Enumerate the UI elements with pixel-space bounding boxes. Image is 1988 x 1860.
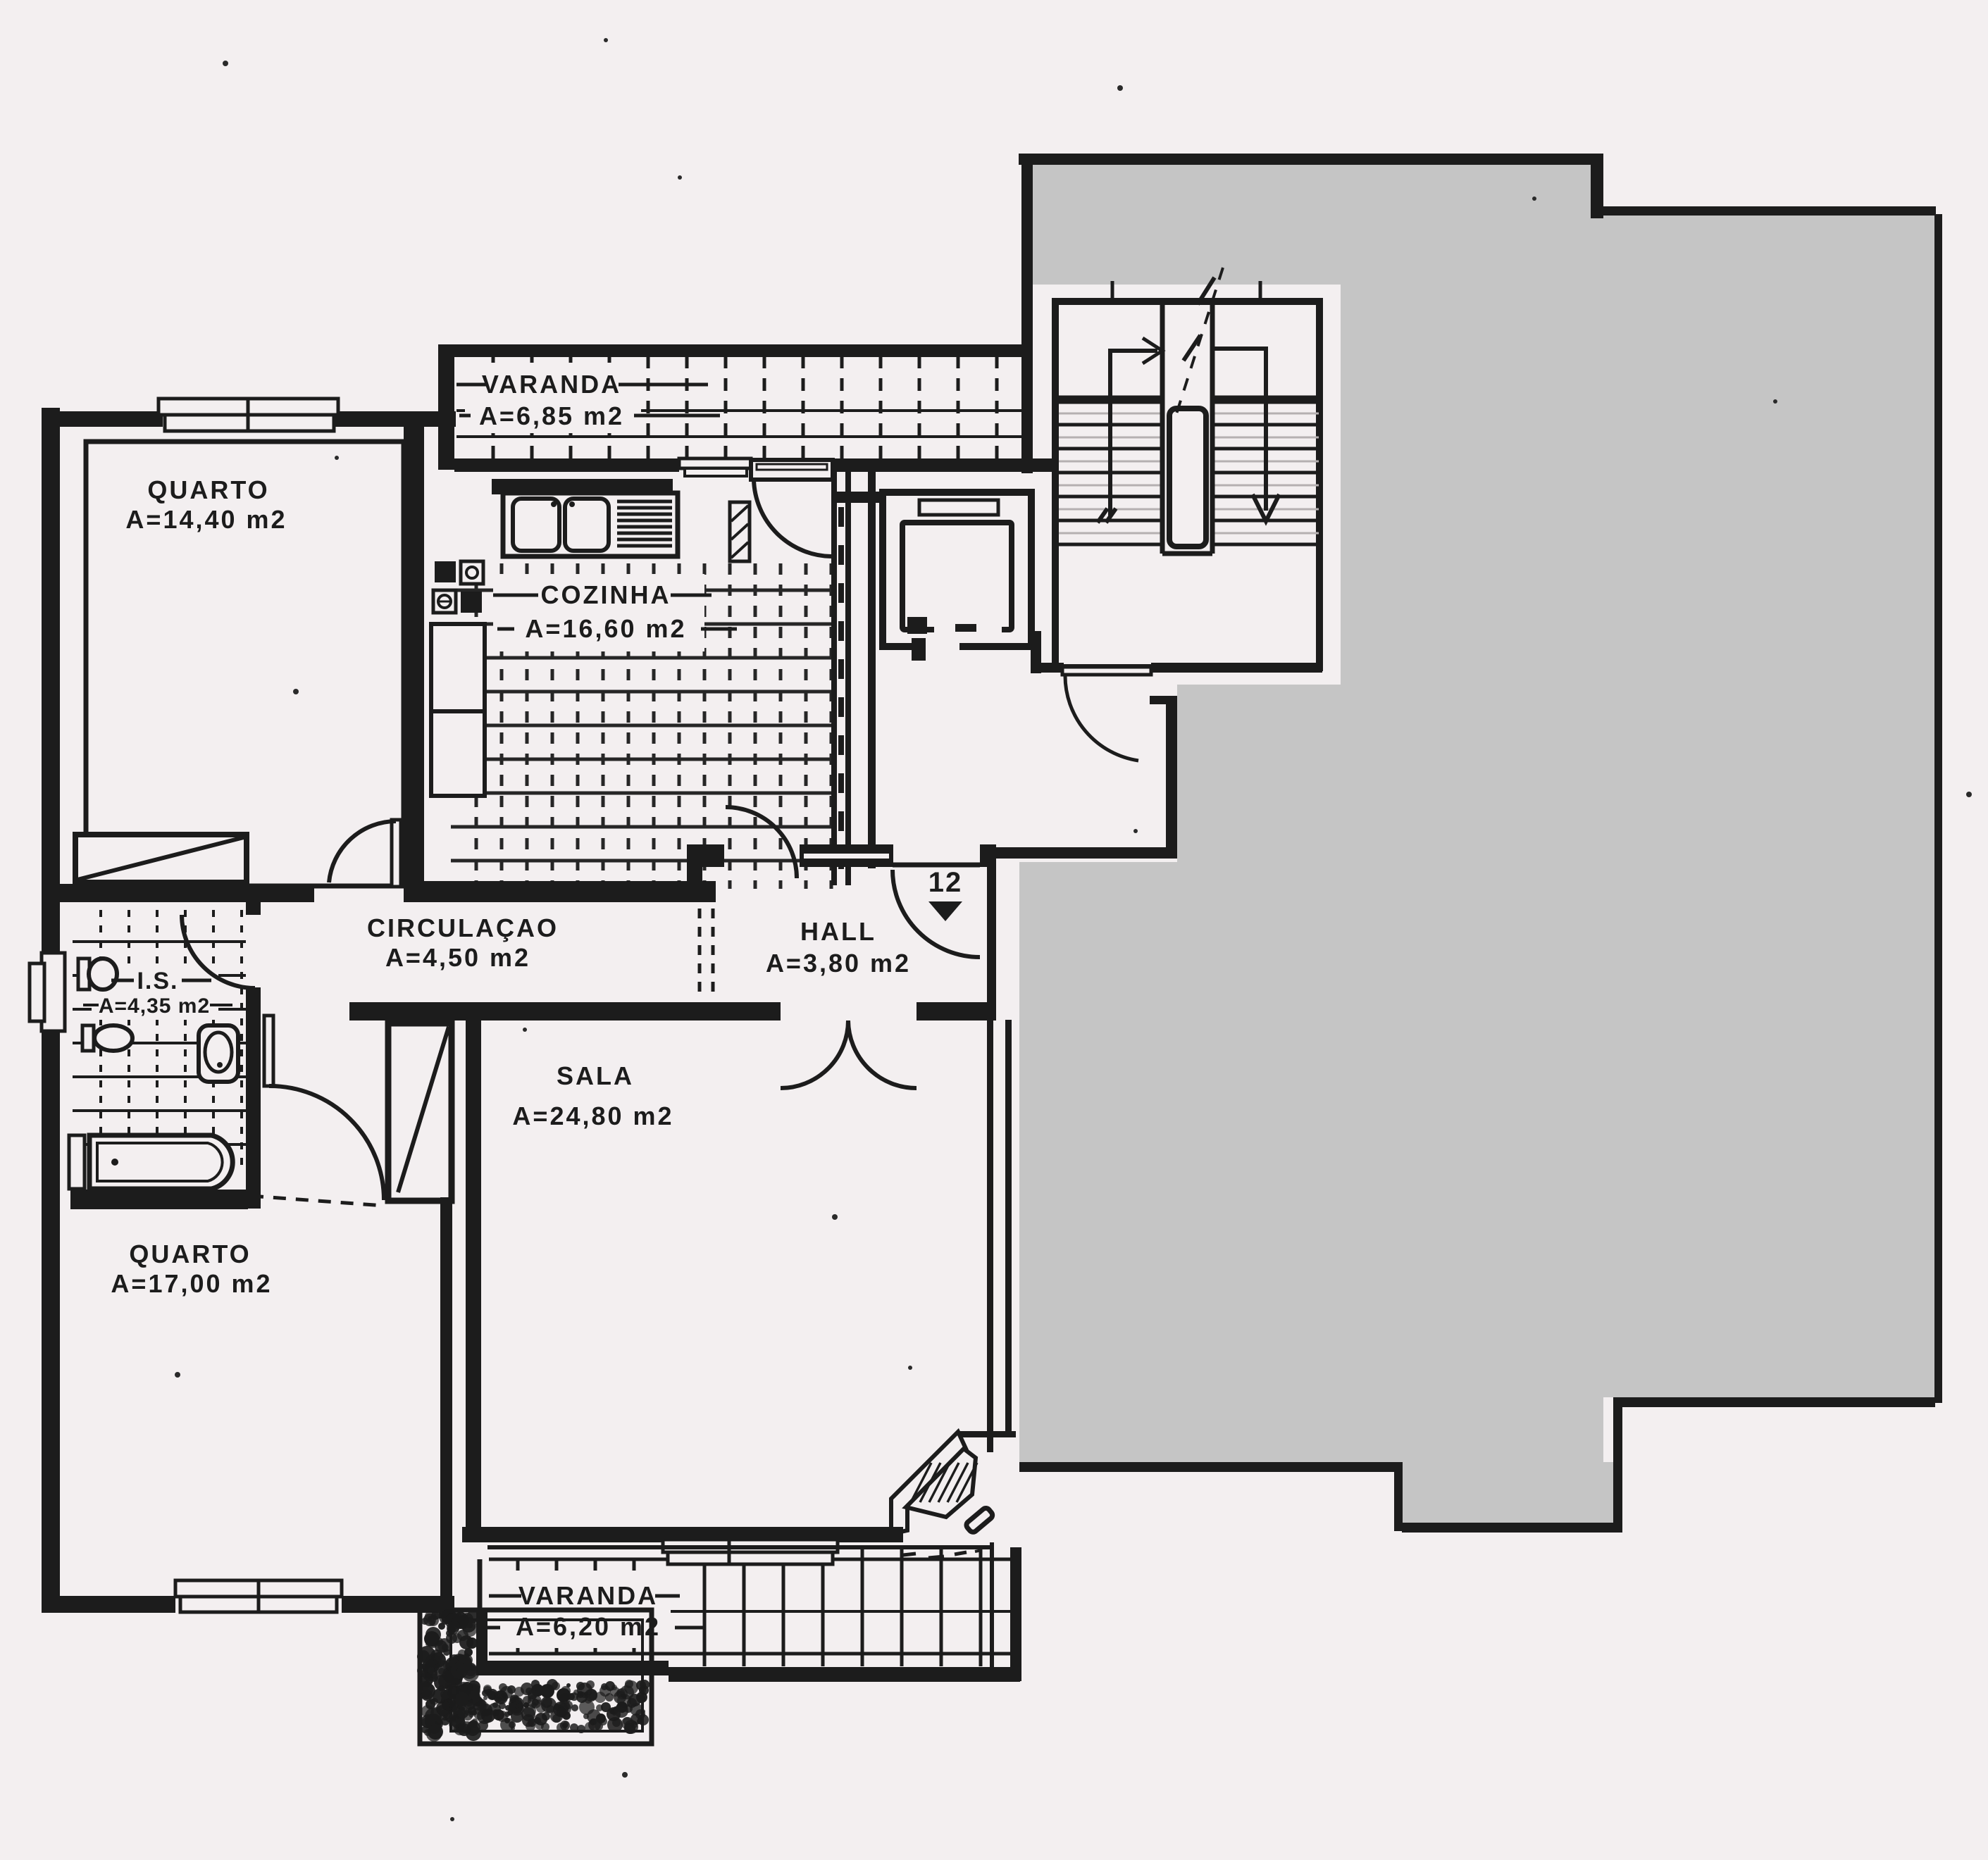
svg-text:A=6,20 m2: A=6,20 m2: [516, 1612, 661, 1641]
svg-text:HALL: HALL: [800, 917, 876, 946]
svg-text:A=4,50 m2: A=4,50 m2: [385, 943, 530, 972]
svg-text:QUARTO: QUARTO: [147, 475, 269, 504]
svg-text:A=6,85 m2: A=6,85 m2: [479, 401, 624, 430]
svg-text:VARANDA: VARANDA: [518, 1581, 658, 1610]
svg-text:A=3,80 m2: A=3,80 m2: [766, 949, 911, 978]
svg-text:QUARTO: QUARTO: [129, 1240, 251, 1268]
svg-text:A=24,80 m2: A=24,80 m2: [512, 1101, 673, 1130]
svg-text:SALA: SALA: [557, 1061, 634, 1090]
svg-text:CIRCULAÇAO: CIRCULAÇAO: [367, 913, 559, 942]
svg-text:A=17,00 m2: A=17,00 m2: [111, 1269, 272, 1298]
svg-text:A=14,40 m2: A=14,40 m2: [125, 505, 287, 534]
svg-text:A=4,35 m2: A=4,35 m2: [99, 994, 210, 1018]
svg-text:VARANDA: VARANDA: [482, 370, 621, 399]
svg-text:A=16,60 m2: A=16,60 m2: [525, 614, 686, 643]
svg-text:I.S.: I.S.: [137, 968, 178, 994]
svg-text:COZINHA: COZINHA: [541, 580, 671, 609]
svg-text:12: 12: [928, 867, 963, 898]
